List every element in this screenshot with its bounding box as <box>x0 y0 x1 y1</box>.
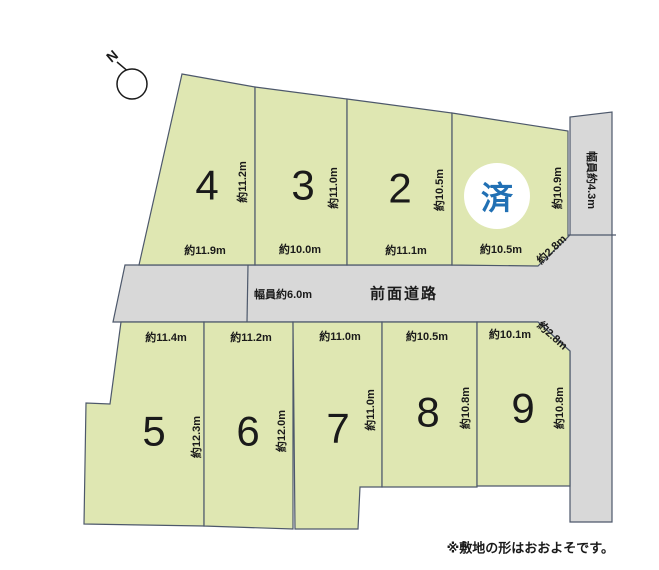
plot-2-frontage-dim: 約11.1m <box>385 243 427 257</box>
plot-3-side-dim: 約11.0m <box>326 167 340 209</box>
front-road-width-label: 幅員約6.0m <box>254 287 312 301</box>
north-compass: N <box>103 47 147 99</box>
plot-7-side-dim: 約11.0m <box>363 389 377 431</box>
plot-7-frontage-dim: 約11.0m <box>319 329 361 343</box>
plot-4-side-dim: 約11.2m <box>235 161 249 203</box>
shape-disclaimer-note: ※敷地の形はおおよそです。 <box>447 541 614 556</box>
plot-3-frontage-dim: 約10.0m <box>279 242 321 256</box>
plot-8-number: 8 <box>416 389 439 436</box>
land-plot-diagram: 4 3 2 済 約11.2m 約11.0m 約10.5m 約10.9m 約11.… <box>0 0 659 570</box>
plot-7-number: 7 <box>326 405 349 452</box>
plot-2-side-dim: 約10.5m <box>432 169 446 211</box>
plot-8-frontage-dim: 約10.5m <box>406 329 448 343</box>
plot-1-side-dim: 約10.9m <box>550 167 564 209</box>
plot-9-side-dim: 約10.8m <box>552 387 566 429</box>
plot-3-number: 3 <box>291 162 314 209</box>
plot-6-number: 6 <box>236 408 259 455</box>
side-road-width-label: 幅員約4.3m <box>585 151 599 209</box>
site-plan-svg: 4 3 2 済 約11.2m 約11.0m 約10.5m 約10.9m 約11.… <box>0 0 659 570</box>
plot-8-side-dim: 約10.8m <box>458 387 472 429</box>
plot-6-frontage-dim: 約11.2m <box>230 330 272 344</box>
plot-4-frontage-dim: 約11.9m <box>184 243 226 257</box>
plot-1-frontage-dim: 約10.5m <box>480 242 522 256</box>
plot-5-number: 5 <box>142 408 165 455</box>
plot-9-number: 9 <box>511 385 534 432</box>
plot-4-number: 4 <box>195 162 218 209</box>
compass-circle <box>117 69 147 99</box>
plot-2-number: 2 <box>388 165 411 212</box>
plot-9-frontage-dim: 約10.1m <box>489 327 531 341</box>
plot-5-frontage-dim: 約11.4m <box>145 330 187 344</box>
sold-badge-label: 済 <box>481 180 514 216</box>
plot-5-side-dim: 約12.3m <box>189 416 203 458</box>
plot-6-side-dim: 約12.0m <box>274 410 288 452</box>
front-road-name-label: 前面道路 <box>370 285 438 303</box>
